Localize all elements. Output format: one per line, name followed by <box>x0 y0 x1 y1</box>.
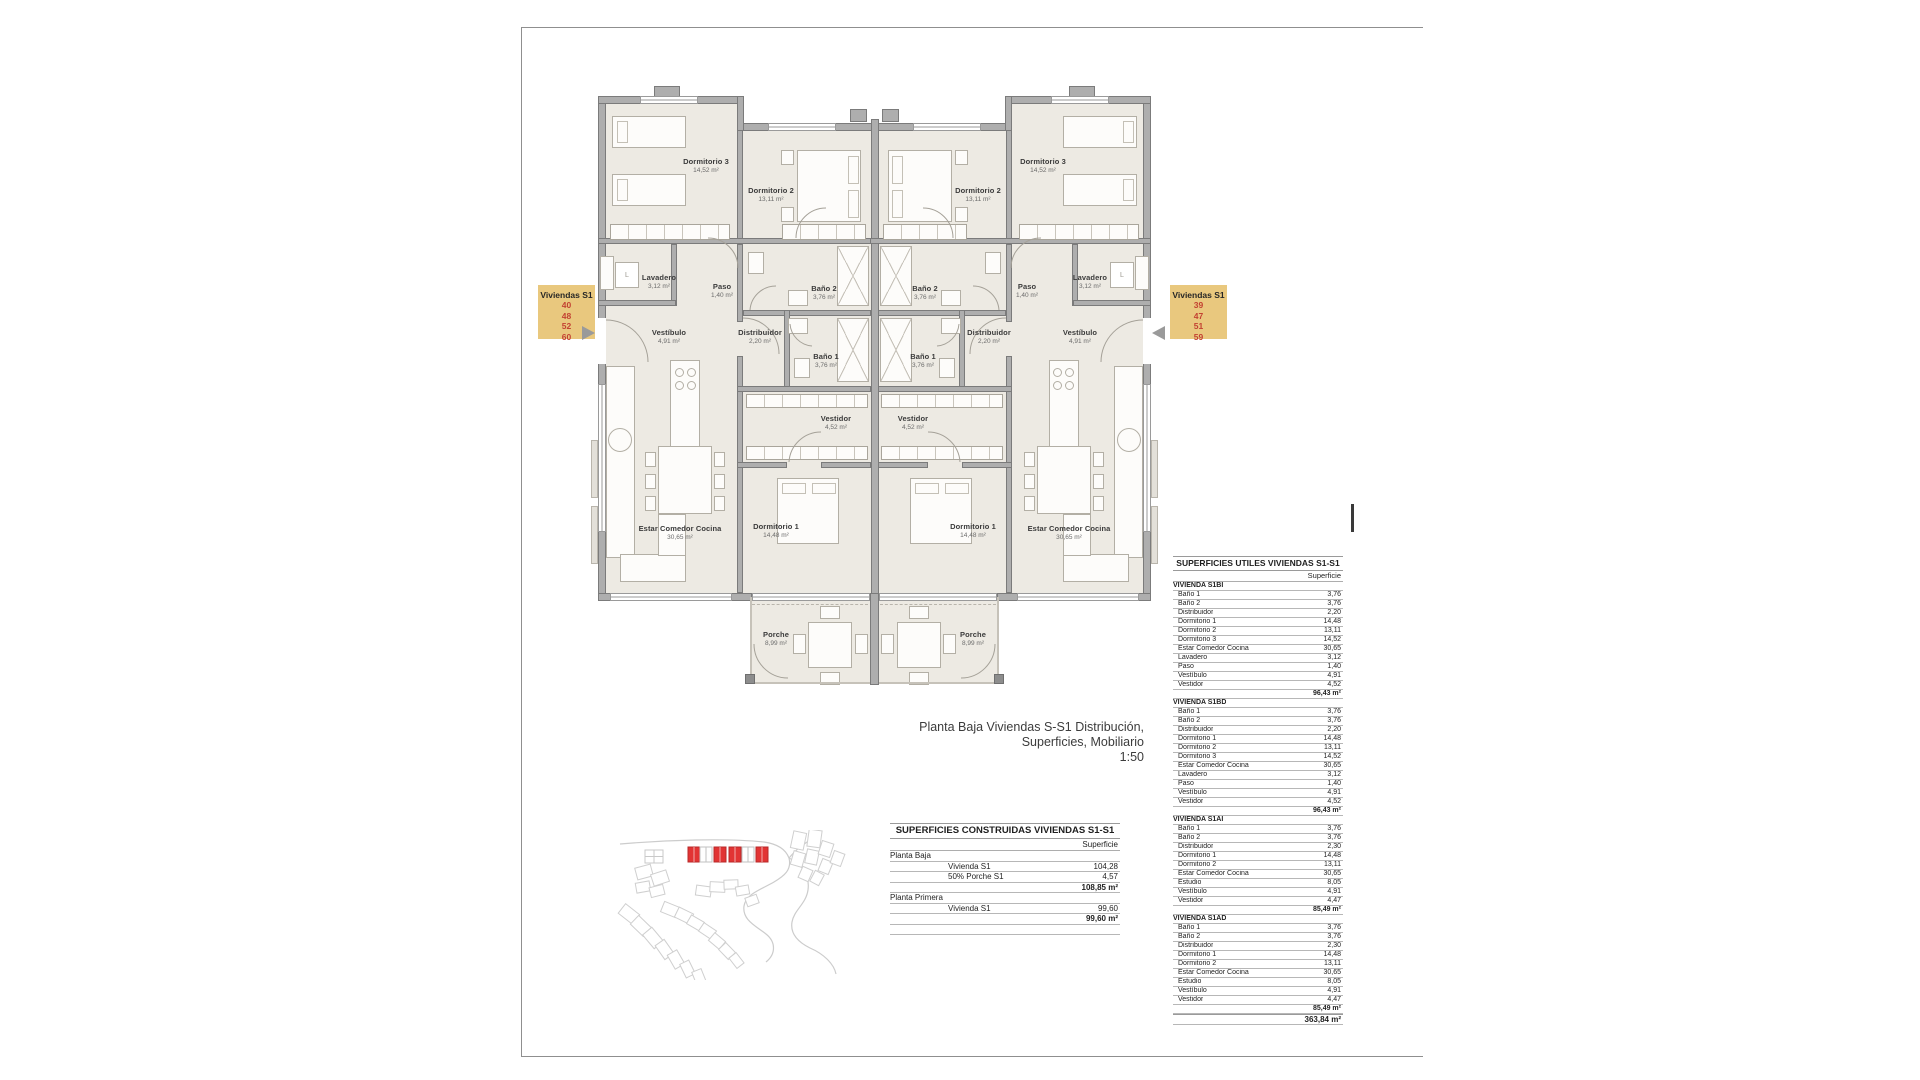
furniture <box>881 634 894 654</box>
window-sill <box>591 506 598 564</box>
bed <box>612 116 686 148</box>
furniture <box>897 622 941 668</box>
table-row: 108,85 m² <box>890 883 1120 894</box>
plan-caption-scale: 1:50 <box>858 750 1144 765</box>
room-name: Vestíbulo <box>652 328 686 337</box>
room-name: Vestidor <box>898 414 928 423</box>
room-name: Vestíbulo <box>1063 328 1097 337</box>
room-area: 14,48 m² <box>753 532 799 539</box>
table-row: Vestíbulo4,91 <box>1173 672 1343 681</box>
pillow <box>617 121 628 143</box>
window-sill <box>591 440 598 498</box>
pillow <box>892 190 903 218</box>
wardrobe <box>883 224 967 240</box>
table-row: 85,49 m² <box>1173 906 1343 915</box>
wall <box>850 109 867 122</box>
room-name: Dormitorio 1 <box>753 522 799 531</box>
shower <box>837 318 869 382</box>
furniture <box>1063 554 1129 582</box>
site-key-map <box>596 830 848 985</box>
table-row: Lavadero3,12 <box>1173 771 1343 780</box>
window <box>913 123 981 131</box>
shower <box>880 318 912 382</box>
furniture <box>820 606 840 619</box>
furniture <box>985 252 1001 274</box>
furniture <box>909 606 929 619</box>
table-row: Vivienda S199,60 <box>890 904 1120 915</box>
room-name: Dormitorio 1 <box>950 522 996 531</box>
furniture <box>1053 381 1062 390</box>
furniture <box>788 318 808 334</box>
table-row: Vestíbulo4,91 <box>1173 888 1343 897</box>
room-area: 30,65 m² <box>1028 534 1111 541</box>
table-row: Distribuidor2,30 <box>1173 843 1343 852</box>
table-row: Lavadero3,12 <box>1173 654 1343 663</box>
table-row: Dormitorio 114,48 <box>1173 951 1343 960</box>
table-row: Dormitorio 213,11 <box>1173 627 1343 636</box>
room-label: Estar Comedor Cocina 30,65 m² <box>639 524 722 541</box>
room-area: 2,20 m² <box>967 338 1011 345</box>
site-building <box>710 882 726 893</box>
table-row: Baño 13,76 <box>1173 591 1343 600</box>
bed <box>1063 116 1137 148</box>
wall <box>1005 96 1012 131</box>
pillow <box>848 190 859 218</box>
porch-post <box>994 674 1004 684</box>
table-row: 363,84 m² <box>1173 1014 1343 1025</box>
wall <box>821 462 871 468</box>
room-label: Dormitorio 3 14,52 m² <box>1020 157 1066 174</box>
room-label: Dormitorio 1 14,48 m² <box>950 522 996 539</box>
room-area: 8,99 m² <box>960 640 986 647</box>
room-area: 3,76 m² <box>910 362 936 369</box>
table-row: Vestíbulo4,91 <box>1173 987 1343 996</box>
table-row: Estar Comedor Cocina30,65 <box>1173 969 1343 978</box>
room-name: Paso <box>1016 282 1038 291</box>
room-area: 4,91 m² <box>1063 338 1097 345</box>
site-building <box>695 885 711 897</box>
porch-threshold <box>880 604 996 606</box>
pillow <box>945 483 969 494</box>
shower <box>837 246 869 306</box>
table-row: Baño 13,76 <box>1173 825 1343 834</box>
room-label: Vestíbulo 4,91 m² <box>1063 328 1097 345</box>
room-area: 3,76 m² <box>811 294 837 301</box>
room-area: 1,40 m² <box>711 292 733 299</box>
window <box>598 318 606 364</box>
room-label: Distribuidor 2,20 m² <box>967 328 1011 345</box>
room-name: Estar Comedor Cocina <box>1028 524 1111 533</box>
built-areas-table-title: SUPERFICIES CONSTRUIDAS VIVIENDAS S1-S1 <box>890 823 1120 839</box>
porch-edge <box>997 597 999 683</box>
table-row: Baño 23,76 <box>1173 834 1343 843</box>
furniture <box>781 150 794 165</box>
table-row: Dormitorio 213,11 <box>1173 861 1343 870</box>
units-label-right-title: Viviendas S1 <box>1170 290 1227 300</box>
room-name: Lavadero <box>642 273 676 282</box>
wall <box>737 130 743 240</box>
room-label: Dormitorio 3 14,52 m² <box>683 157 729 174</box>
bed <box>612 174 686 206</box>
room-label: Dormitorio 2 13,11 m² <box>955 186 1001 203</box>
room-label: Baño 1 3,76 m² <box>813 352 839 369</box>
table-row: Distribuidor2,20 <box>1173 726 1343 735</box>
wall <box>1073 300 1151 306</box>
table-row: Estar Comedor Cocina30,65 <box>1173 645 1343 654</box>
table-row: Dormitorio 314,52 <box>1173 636 1343 645</box>
site-building <box>745 894 759 907</box>
site-building <box>649 884 665 897</box>
table-row: Baño 23,76 <box>1173 717 1343 726</box>
wall <box>882 109 899 122</box>
table-row: Baño 13,76 <box>1173 708 1343 717</box>
furniture <box>943 634 956 654</box>
room-name: Baño 2 <box>912 284 938 293</box>
wall <box>871 119 879 601</box>
furniture <box>714 452 725 467</box>
furniture <box>808 622 852 668</box>
washer-box: L <box>1110 262 1134 288</box>
site-building <box>651 870 670 886</box>
table-row: Vestidor4,47 <box>1173 897 1343 906</box>
shower <box>880 246 912 306</box>
room-label: Baño 1 3,76 m² <box>910 352 936 369</box>
room-name: Vestidor <box>821 414 851 423</box>
pillow <box>892 156 903 184</box>
table-row: Dormitorio 314,52 <box>1173 753 1343 762</box>
room-name: Distribuidor <box>967 328 1011 337</box>
furniture <box>1135 256 1149 290</box>
window-sill <box>1151 506 1158 564</box>
window <box>1143 384 1151 532</box>
wardrobe <box>1019 224 1139 240</box>
entrance-arrow-right <box>1152 326 1165 340</box>
furniture <box>1024 496 1035 511</box>
pillow <box>812 483 836 494</box>
units-label-right-numbers: 39475159 <box>1170 300 1227 342</box>
pillow <box>782 483 806 494</box>
room-name: Dormitorio 3 <box>1020 157 1066 166</box>
wall <box>737 96 744 131</box>
room-area: 2,20 m² <box>738 338 782 345</box>
room-label: Estar Comedor Cocina 30,65 m² <box>1028 524 1111 541</box>
table-row: Distribuidor2,30 <box>1173 942 1343 951</box>
window <box>879 593 997 601</box>
site-building <box>635 881 651 893</box>
room-name: Distribuidor <box>738 328 782 337</box>
room-area: 3,76 m² <box>813 362 839 369</box>
furniture <box>606 366 635 558</box>
built-areas-table-body: Planta BajaVivienda S1104,2850% Porche S… <box>890 851 1120 935</box>
table-row <box>890 925 1120 936</box>
room-area: 30,65 m² <box>639 534 722 541</box>
wardrobe <box>746 446 868 460</box>
room-area: 4,52 m² <box>898 424 928 431</box>
washer-box: L <box>615 262 639 288</box>
unit-number: 51 <box>1170 321 1227 332</box>
wall <box>743 310 871 316</box>
furniture <box>955 207 968 222</box>
room-name: Estar Comedor Cocina <box>639 524 722 533</box>
window <box>610 593 732 601</box>
table-row: Estudio8,05 <box>1173 978 1343 987</box>
room-name: Baño 1 <box>813 352 839 361</box>
table-row: Estudio8,05 <box>1173 879 1343 888</box>
furniture <box>608 428 632 452</box>
table-row: Baño 23,76 <box>1173 933 1343 942</box>
room-name: Paso <box>711 282 733 291</box>
furniture <box>793 634 806 654</box>
room-label: Distribuidor 2,20 m² <box>738 328 782 345</box>
furniture <box>675 381 684 390</box>
furniture <box>1093 452 1104 467</box>
room-label: Vestíbulo 4,91 m² <box>652 328 686 345</box>
room-area: 8,99 m² <box>763 640 789 647</box>
table-row: Estar Comedor Cocina30,65 <box>1173 762 1343 771</box>
unit-number: 40 <box>538 300 595 311</box>
table-row: Planta Primera <box>890 893 1120 904</box>
furniture <box>1024 474 1035 489</box>
furniture <box>748 252 764 274</box>
table-row: VIVIENDA S1BD <box>1173 699 1343 708</box>
furniture <box>687 381 696 390</box>
window <box>598 384 606 532</box>
room-name: Dormitorio 2 <box>955 186 1001 195</box>
window <box>768 123 836 131</box>
furniture <box>955 150 968 165</box>
site-building <box>635 864 654 880</box>
room-area: 4,91 m² <box>652 338 686 345</box>
table-row: Paso1,40 <box>1173 780 1343 789</box>
unit-number: 59 <box>1170 332 1227 343</box>
site-map-svg <box>596 830 848 980</box>
furniture <box>645 474 656 489</box>
pillow <box>617 179 628 201</box>
table-row: 99,60 m² <box>890 914 1120 925</box>
furniture <box>675 368 684 377</box>
table-row: Vestidor4,52 <box>1173 681 1343 690</box>
furniture <box>1024 452 1035 467</box>
wall <box>878 386 1012 392</box>
room-name: Lavadero <box>1073 273 1107 282</box>
bed <box>888 150 952 222</box>
table-row: Baño 13,76 <box>1173 924 1343 933</box>
built-areas-table: SUPERFICIES CONSTRUIDAS VIVIENDAS S1-S1 … <box>890 823 1120 935</box>
furniture <box>620 554 686 582</box>
furniture <box>1093 496 1104 511</box>
wall <box>1006 130 1012 240</box>
wall <box>962 462 1012 468</box>
room-label: Lavadero 3,12 m² <box>1073 273 1107 290</box>
furniture <box>1065 368 1074 377</box>
furniture <box>1093 474 1104 489</box>
table-row: VIVIENDA S1AI <box>1173 816 1343 825</box>
room-label: Paso 1,40 m² <box>711 282 733 299</box>
window-sill <box>1151 440 1158 498</box>
furniture <box>1037 446 1091 514</box>
usable-areas-table: SUPERFICIES UTILES VIVIENDAS S1-S1 Super… <box>1173 556 1343 1025</box>
window <box>640 96 698 104</box>
table-row: Vestidor4,52 <box>1173 798 1343 807</box>
table-row: Planta Baja <box>890 851 1120 862</box>
pillow <box>1123 179 1134 201</box>
room-area: 14,48 m² <box>950 532 996 539</box>
wall <box>878 310 1006 316</box>
built-areas-table-colheader: Superficie <box>890 839 1120 851</box>
table-row: Vivienda S1104,28 <box>890 862 1120 873</box>
room-label: Porche 8,99 m² <box>763 630 789 647</box>
room-name: Dormitorio 3 <box>683 157 729 166</box>
wall <box>737 386 871 392</box>
room-area: 4,52 m² <box>821 424 851 431</box>
wardrobe <box>881 394 1003 408</box>
site-building <box>805 849 820 865</box>
wall <box>737 462 787 468</box>
porch-edge <box>879 682 997 684</box>
table-row: Baño 23,76 <box>1173 600 1343 609</box>
site-building <box>790 831 806 850</box>
furniture <box>941 318 961 334</box>
room-name: Porche <box>960 630 986 639</box>
room-label: Dormitorio 2 13,11 m² <box>748 186 794 203</box>
room-label: Baño 2 3,76 m² <box>912 284 938 301</box>
pillow <box>1123 121 1134 143</box>
porch-threshold <box>752 604 868 606</box>
table-row: Vestíbulo4,91 <box>1173 789 1343 798</box>
table-row: Distribuidor2,20 <box>1173 609 1343 618</box>
table-row: Dormitorio 114,48 <box>1173 852 1343 861</box>
unit-number: 48 <box>538 311 595 322</box>
furniture <box>781 207 794 222</box>
plan-caption-line1: Planta Baja Viviendas S-S1 Distribución,… <box>858 720 1144 750</box>
room-label: Vestidor 4,52 m² <box>821 414 851 431</box>
window <box>1051 96 1109 104</box>
furniture <box>1114 366 1143 558</box>
site-building <box>790 851 805 868</box>
room-area: 14,52 m² <box>1020 167 1066 174</box>
plan-caption: Planta Baja Viviendas S-S1 Distribución,… <box>858 720 1144 765</box>
room-area: 13,11 m² <box>955 196 1001 203</box>
wall <box>870 593 879 685</box>
site-building <box>807 830 822 848</box>
window <box>1143 318 1151 364</box>
table-row: Dormitorio 114,48 <box>1173 735 1343 744</box>
table-row: Estar Comedor Cocina30,65 <box>1173 870 1343 879</box>
units-label-left-title: Viviendas S1 <box>538 290 595 300</box>
furniture <box>788 290 808 306</box>
furniture <box>1117 428 1141 452</box>
porch-edge <box>752 682 870 684</box>
room-area: 1,40 m² <box>1016 292 1038 299</box>
wardrobe <box>610 224 730 240</box>
wall <box>1006 244 1012 322</box>
room-label: Baño 2 3,76 m² <box>811 284 837 301</box>
wardrobe <box>782 224 866 240</box>
furniture <box>855 634 868 654</box>
entrance-arrow-left <box>582 326 595 340</box>
unit-number: 39 <box>1170 300 1227 311</box>
table-row: VIVIENDA S1BI <box>1173 582 1343 591</box>
room-name: Baño 2 <box>811 284 837 293</box>
units-label-right: Viviendas S1 39475159 <box>1170 285 1227 339</box>
room-name: Porche <box>763 630 789 639</box>
room-area: 3,12 m² <box>642 283 676 290</box>
room-area: 3,12 m² <box>1073 283 1107 290</box>
bed <box>797 150 861 222</box>
furniture <box>645 496 656 511</box>
table-row: VIVIENDA S1AD <box>1173 915 1343 924</box>
furniture <box>939 358 955 378</box>
furniture <box>687 368 696 377</box>
porch-edge <box>750 597 752 683</box>
room-label: Vestidor 4,52 m² <box>898 414 928 431</box>
furniture <box>600 256 614 290</box>
furniture <box>1065 381 1074 390</box>
usable-areas-table-colheader: Superficie <box>1173 571 1343 582</box>
wall <box>878 462 928 468</box>
pillow <box>915 483 939 494</box>
room-label: Porche 8,99 m² <box>960 630 986 647</box>
table-row: 50% Porche S14,57 <box>890 872 1120 883</box>
pillow <box>848 156 859 184</box>
grid-building <box>645 850 663 863</box>
table-row: Dormitorio 114,48 <box>1173 618 1343 627</box>
table-row: 85,49 m² <box>1173 1005 1343 1014</box>
room-area: 14,52 m² <box>683 167 729 174</box>
table-row: 96,43 m² <box>1173 690 1343 699</box>
room-label: Paso 1,40 m² <box>1016 282 1038 299</box>
window <box>752 593 870 601</box>
furniture <box>794 358 810 378</box>
furniture <box>941 290 961 306</box>
table-row: 96,43 m² <box>1173 807 1343 816</box>
bed <box>1063 174 1137 206</box>
table-row: Vestidor4,47 <box>1173 996 1343 1005</box>
room-name: Dormitorio 2 <box>748 186 794 195</box>
table-row: Dormitorio 213,11 <box>1173 744 1343 753</box>
room-area: 3,76 m² <box>912 294 938 301</box>
window <box>1017 593 1139 601</box>
furniture <box>714 474 725 489</box>
wardrobe <box>746 394 868 408</box>
usable-areas-table-title: SUPERFICIES UTILES VIVIENDAS S1-S1 <box>1173 556 1343 571</box>
site-building <box>735 885 749 896</box>
usable-areas-table-body: VIVIENDA S1BIBaño 13,76Baño 23,76Distrib… <box>1173 582 1343 1025</box>
furniture <box>645 452 656 467</box>
furniture <box>658 446 712 514</box>
wardrobe <box>881 446 1003 460</box>
porch-post <box>745 674 755 684</box>
table-row: Paso1,40 <box>1173 663 1343 672</box>
furniture <box>1053 368 1062 377</box>
table-row: Dormitorio 213,11 <box>1173 960 1343 969</box>
room-label: Lavadero 3,12 m² <box>642 273 676 290</box>
room-name: Baño 1 <box>910 352 936 361</box>
wall <box>598 300 676 306</box>
unit-number: 47 <box>1170 311 1227 322</box>
room-area: 13,11 m² <box>748 196 794 203</box>
room-label: Dormitorio 1 14,48 m² <box>753 522 799 539</box>
furniture <box>714 496 725 511</box>
